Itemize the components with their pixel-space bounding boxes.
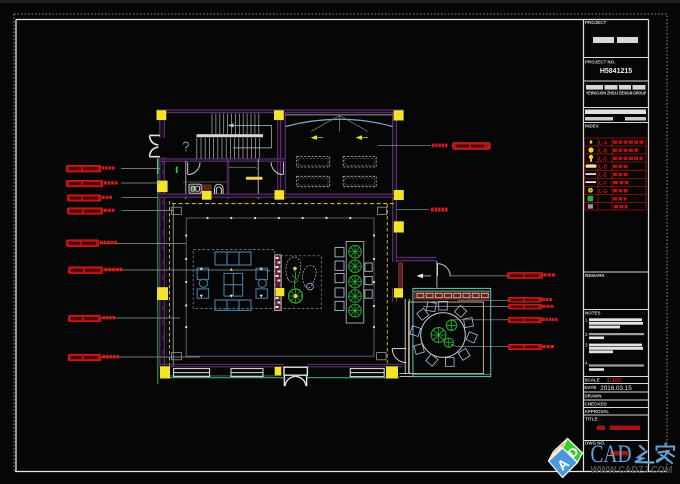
svg-text:L-C: L-C — [599, 157, 608, 163]
svg-text:PROJECT NO.: PROJECT NO. — [585, 60, 616, 65]
svg-text:NOTES: NOTES — [585, 311, 601, 316]
svg-text:YEWAOJOH ZHOJJ DESIGN GROUP: YEWAOJOH ZHOJJ DESIGN GROUP — [586, 91, 646, 96]
svg-text:2016.03.15: 2016.03.15 — [600, 385, 632, 392]
svg-text:3.: 3. — [585, 343, 589, 348]
svg-text:TITLE: TITLE — [585, 417, 598, 422]
svg-text:L-A: L-A — [599, 140, 608, 146]
svg-text:L-B: L-B — [599, 148, 608, 154]
svg-text:DRAWN: DRAWN — [585, 394, 602, 399]
svg-text:DATE: DATE — [585, 385, 597, 390]
svg-text:H5841215: H5841215 — [600, 68, 632, 75]
svg-text:CHECKED: CHECKED — [585, 402, 608, 407]
svg-text:1.: 1. — [585, 318, 589, 323]
svg-text:L-G: L-G — [599, 189, 608, 195]
svg-text:2.: 2. — [585, 332, 589, 337]
svg-text:REMARK: REMARK — [585, 273, 605, 278]
svg-text:1:100: 1:100 — [606, 378, 622, 384]
svg-text:WWW.CADZJ.COM: WWW.CADZJ.COM — [591, 465, 673, 476]
svg-text:CAD: CAD — [591, 441, 632, 468]
svg-text:PROJECT: PROJECT — [585, 20, 607, 25]
svg-text:L-D: L-D — [599, 165, 608, 171]
svg-text:4.: 4. — [585, 361, 589, 366]
svg-text:L-E: L-E — [599, 173, 608, 179]
svg-text:APPROVAL: APPROVAL — [585, 409, 610, 414]
svg-text:L-F: L-F — [599, 181, 607, 187]
svg-text:SCALE: SCALE — [585, 378, 600, 383]
svg-text:INDEX: INDEX — [585, 124, 599, 129]
